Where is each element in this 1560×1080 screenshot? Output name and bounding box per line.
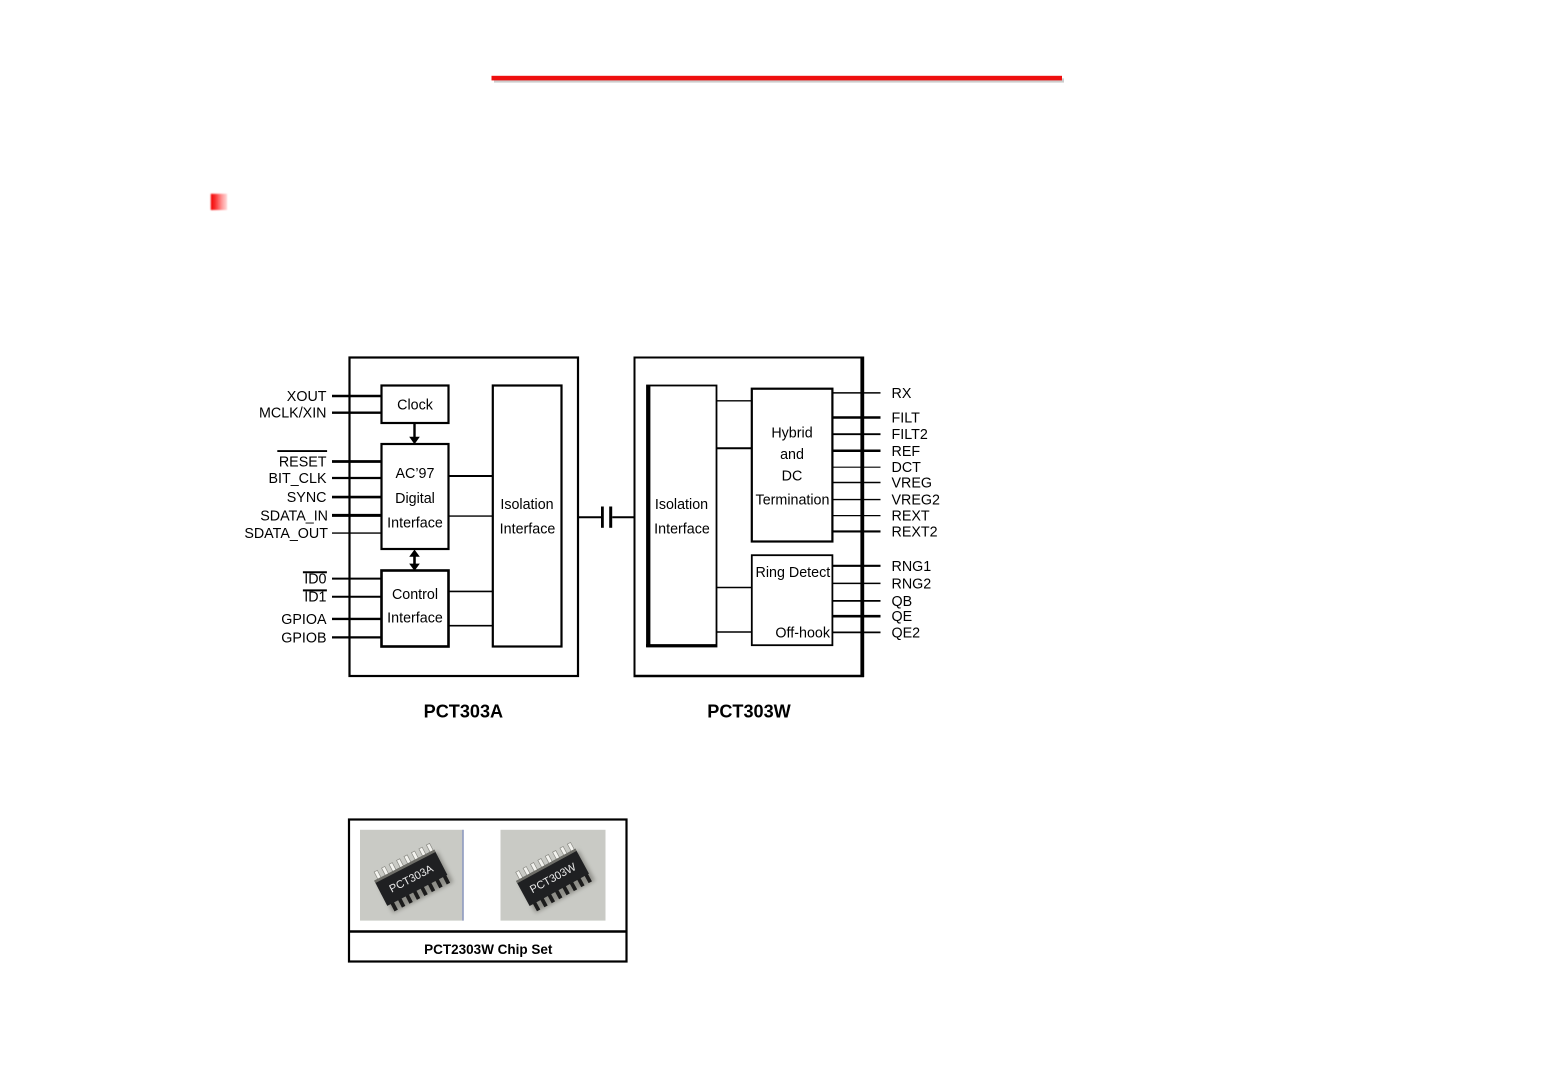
- svg-text:QE: QE: [892, 609, 913, 625]
- svg-text:ID1: ID1: [304, 590, 326, 606]
- svg-text:MCLK/XIN: MCLK/XIN: [259, 406, 327, 422]
- svg-text:RNG1: RNG1: [892, 559, 932, 575]
- svg-text:and: and: [780, 447, 804, 463]
- svg-text:Digital: Digital: [395, 491, 435, 507]
- svg-text:REXT2: REXT2: [892, 524, 938, 540]
- svg-text:Interface: Interface: [387, 516, 443, 532]
- svg-text:DC: DC: [782, 468, 803, 484]
- svg-text:FILT: FILT: [892, 411, 921, 427]
- svg-text:Interface: Interface: [387, 611, 443, 627]
- svg-text:Clock: Clock: [397, 398, 434, 414]
- svg-text:RX: RX: [892, 386, 912, 402]
- svg-text:Ring Detect: Ring Detect: [756, 565, 831, 581]
- svg-text:AC’97: AC’97: [396, 466, 435, 482]
- svg-text:PCT2303W Chip Set: PCT2303W Chip Set: [424, 942, 553, 957]
- svg-text:GPIOA: GPIOA: [281, 612, 327, 628]
- svg-text:DCT: DCT: [892, 460, 922, 476]
- svg-text:GPIOB: GPIOB: [281, 630, 326, 646]
- svg-text:ID0: ID0: [304, 572, 326, 588]
- svg-text:VREG: VREG: [892, 476, 933, 492]
- svg-text:SDATA_IN: SDATA_IN: [260, 508, 328, 524]
- svg-text:Hybrid: Hybrid: [771, 426, 812, 442]
- svg-text:REF: REF: [892, 444, 921, 460]
- svg-text:QE2: QE2: [892, 625, 921, 641]
- svg-text:RESET: RESET: [279, 454, 327, 470]
- svg-text:RNG2: RNG2: [892, 576, 932, 592]
- svg-text:QB: QB: [892, 594, 913, 610]
- svg-text:XOUT: XOUT: [287, 389, 327, 405]
- svg-text:Isolation: Isolation: [500, 497, 553, 513]
- svg-text:Off-hook: Off-hook: [775, 625, 830, 641]
- svg-text:SDATA_OUT: SDATA_OUT: [244, 526, 328, 542]
- svg-text:REXT: REXT: [892, 509, 930, 525]
- svg-text:Interface: Interface: [654, 522, 710, 538]
- svg-text:SYNC: SYNC: [287, 490, 327, 506]
- svg-text:Control: Control: [392, 587, 438, 603]
- svg-text:FILT2: FILT2: [892, 427, 928, 443]
- svg-text:Interface: Interface: [500, 522, 556, 538]
- svg-text:VREG2: VREG2: [892, 493, 941, 509]
- svg-text:Termination: Termination: [756, 492, 830, 508]
- svg-text:BIT_CLK: BIT_CLK: [268, 471, 326, 487]
- svg-text:PCT303W: PCT303W: [707, 702, 791, 722]
- svg-text:PCT303A: PCT303A: [424, 702, 503, 722]
- svg-text:Isolation: Isolation: [655, 497, 708, 513]
